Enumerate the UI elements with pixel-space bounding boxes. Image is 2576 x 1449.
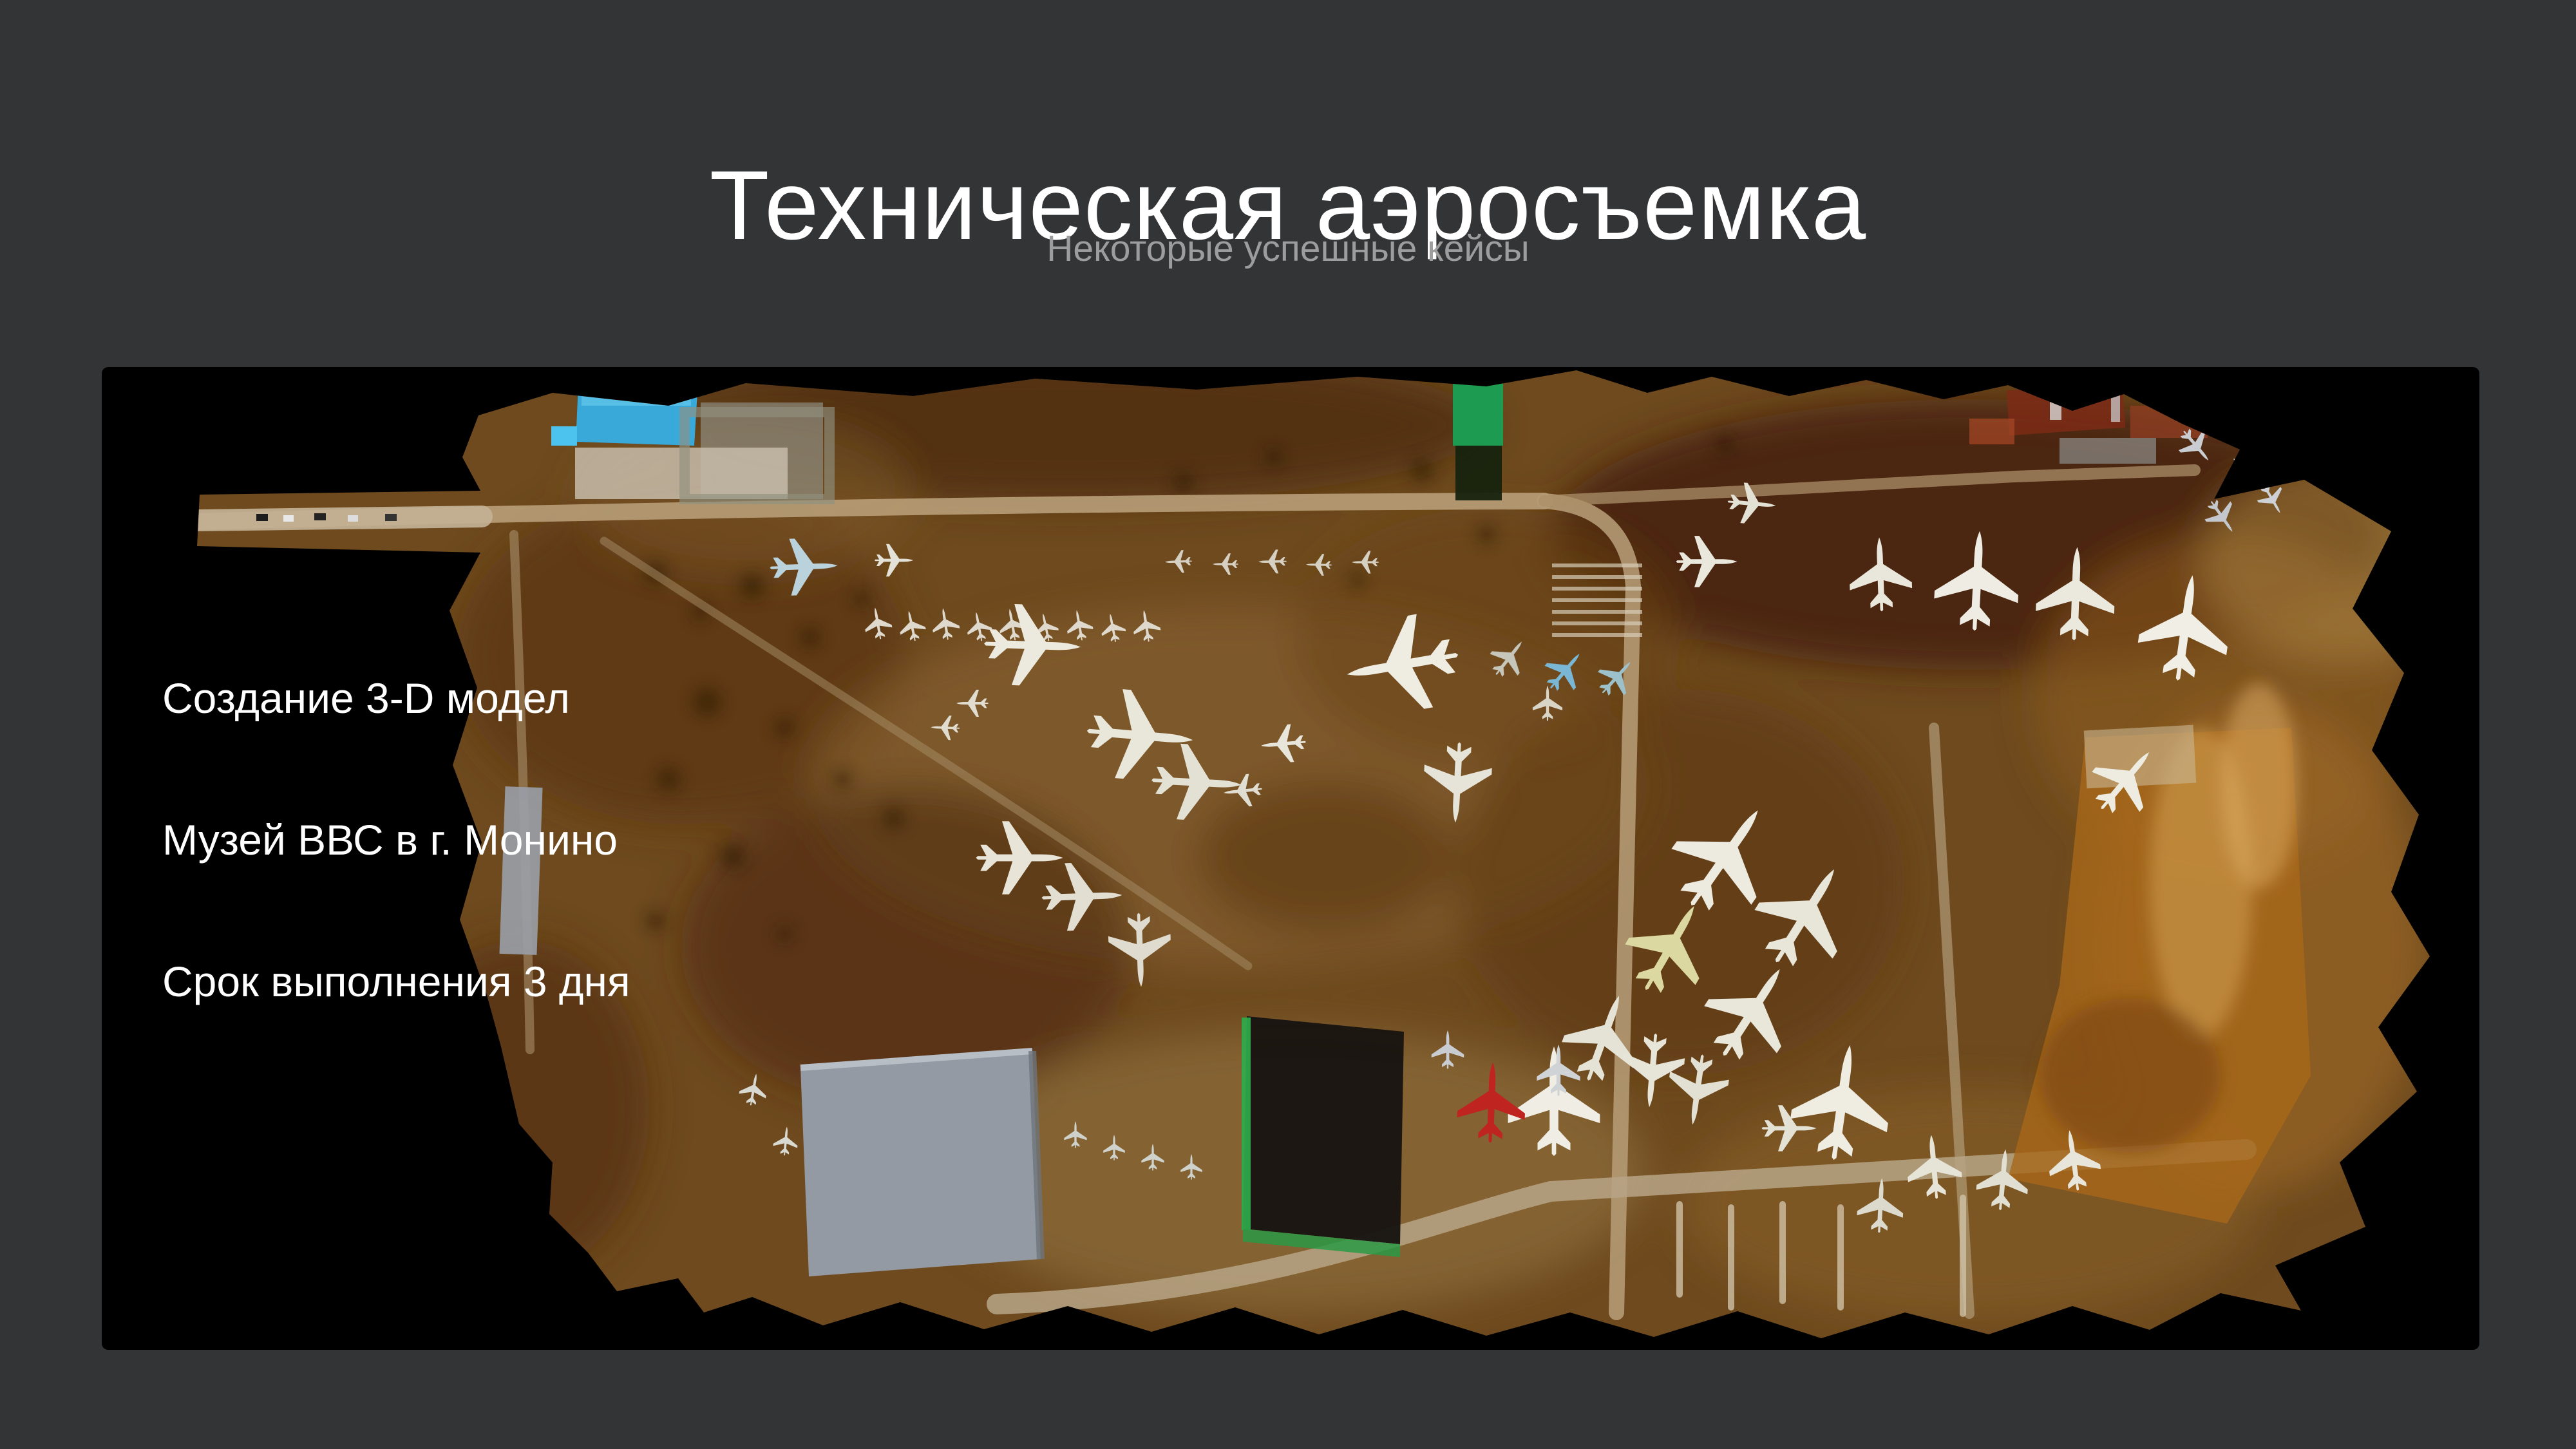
slide: Техническая аэросъемка Некоторые успешны… bbox=[0, 0, 2576, 1449]
caption-line-3: Срок выполнения 3 дня bbox=[162, 958, 630, 1005]
caption-line-2: Музей ВВС в г. Монино bbox=[162, 817, 618, 864]
page-subtitle: Некоторые успешные кейсы bbox=[0, 227, 2576, 270]
caption-line-1: Создание 3-D модел bbox=[162, 675, 570, 722]
